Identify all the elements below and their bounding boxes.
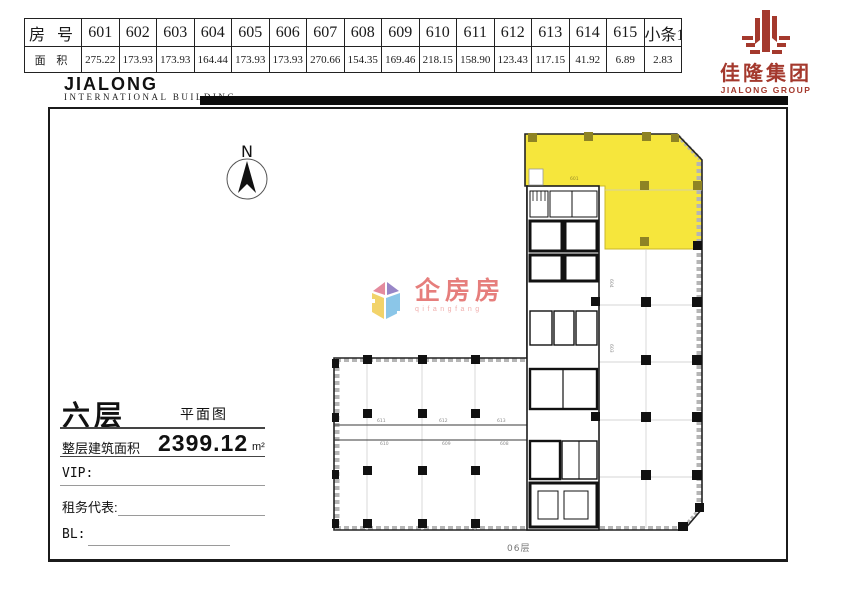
- vip-underline: [60, 485, 265, 486]
- room-number-row: 房 号 601602603604605606607608609610611612…: [25, 19, 682, 47]
- corridor-walls: [334, 425, 527, 440]
- room-area-cell: 173.93: [157, 47, 195, 73]
- room-number-cell: 604: [194, 19, 232, 47]
- room-area-cell: 117.15: [532, 47, 570, 73]
- plan-room-label: 603: [608, 344, 614, 353]
- north-label: N: [241, 142, 253, 161]
- room-area-cell: 173.93: [232, 47, 270, 73]
- room-number-cell: 602: [119, 19, 157, 47]
- room-area-cell: 158.90: [457, 47, 495, 73]
- company-logo: 佳隆集团 JIALONG GROUP: [696, 8, 836, 95]
- plan-room-label: 613: [497, 418, 506, 424]
- service-core: [527, 186, 599, 530]
- logo-english-name: JIALONG GROUP: [696, 85, 836, 95]
- north-arrow: N: [227, 142, 267, 199]
- total-area-value: 2399.12: [158, 430, 248, 457]
- agent-underline: [118, 515, 265, 516]
- watermark-house-icon: [363, 278, 409, 324]
- room-number-cell: 613: [532, 19, 570, 47]
- room-number-cell: 605: [232, 19, 270, 47]
- divider-line: [60, 456, 265, 457]
- divider-line: [60, 427, 265, 429]
- room-area-cell: 2.83: [644, 47, 682, 73]
- area-row-label: 面 积: [25, 47, 82, 73]
- bl-label: BL:: [62, 527, 85, 542]
- room-number-cell: 609: [382, 19, 420, 47]
- floorplan-drawing: N 611612613610609608604603601 06层: [50, 109, 786, 559]
- header-divider-bar: [200, 96, 788, 105]
- bl-underline: [88, 545, 230, 546]
- floor-tag: 06层: [507, 543, 530, 554]
- room-area-cell: 275.22: [82, 47, 120, 73]
- watermark-pinyin: qifangfang: [415, 306, 505, 313]
- room-number-cell: 小条1: [644, 19, 682, 47]
- plan-room-label: 601: [570, 176, 579, 182]
- total-area-unit: m²: [252, 441, 265, 453]
- room-number-cell: 607: [307, 19, 345, 47]
- room-area-cell: 123.43: [494, 47, 532, 73]
- room-number-cell: 612: [494, 19, 532, 47]
- plan-type-label: 平面图: [180, 404, 228, 424]
- room-number-cell: 608: [344, 19, 382, 47]
- room-area-cell: 169.46: [382, 47, 420, 73]
- room-number-cell: 601: [82, 19, 120, 47]
- room-number-cell: 610: [419, 19, 457, 47]
- room-area-cell: 270.66: [307, 47, 345, 73]
- room-area-cell: 6.89: [607, 47, 645, 73]
- jialong-logo-icon: [735, 8, 797, 58]
- floorplan-sheet: 房 号 601602603604605606607608609610611612…: [0, 0, 848, 600]
- plan-room-label: 612: [439, 418, 448, 424]
- drawing-frame: N 611612613610609608604603601 06层: [48, 107, 788, 562]
- room-area-cell: 154.35: [344, 47, 382, 73]
- room-number-cell: 615: [607, 19, 645, 47]
- room-area-row: 面 积 275.22173.93173.93164.44173.93173.93…: [25, 47, 682, 73]
- plan-room-label: 611: [377, 418, 386, 424]
- room-area-cell: 164.44: [194, 47, 232, 73]
- room-area-cell: 41.92: [569, 47, 607, 73]
- agent-label: 租务代表:: [62, 497, 118, 516]
- room-area-cell: 218.15: [419, 47, 457, 73]
- plan-room-label: 609: [442, 441, 451, 447]
- room-area-table: 房 号 601602603604605606607608609610611612…: [24, 18, 682, 73]
- plan-room-label: 610: [380, 441, 389, 447]
- room-number-cell: 606: [269, 19, 307, 47]
- room-area-cell: 173.93: [119, 47, 157, 73]
- total-area-label: 整层建筑面积: [62, 438, 140, 457]
- plan-notch: [529, 169, 543, 185]
- room-number-cell: 614: [569, 19, 607, 47]
- watermark: 企房房 qifangfang: [363, 278, 505, 324]
- watermark-name: 企房房: [415, 278, 505, 304]
- room-row-label: 房 号: [25, 19, 82, 47]
- logo-chinese-name: 佳隆集团: [696, 63, 836, 85]
- room-number-cell: 603: [157, 19, 195, 47]
- plan-room-label: 608: [500, 441, 509, 447]
- plan-room-label: 604: [608, 279, 614, 288]
- vip-label: VIP:: [62, 466, 93, 481]
- room-area-cell: 173.93: [269, 47, 307, 73]
- room-number-cell: 611: [457, 19, 495, 47]
